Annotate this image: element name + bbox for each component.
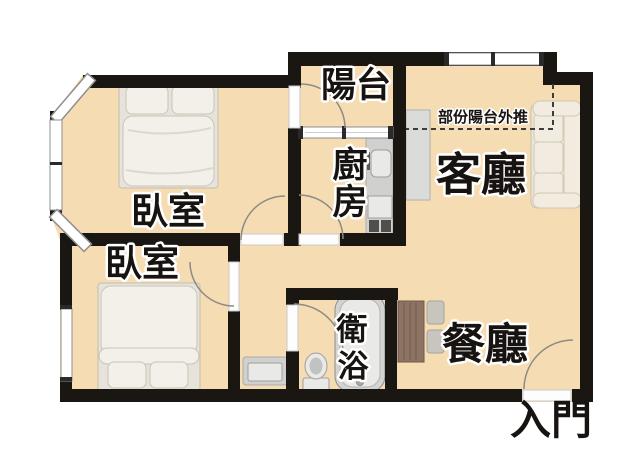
window-jamb — [60, 305, 72, 309]
stove-burner — [369, 220, 379, 232]
wall-bedroom2-left-lower — [60, 380, 72, 402]
sofa-armrest — [533, 101, 581, 116]
stove — [368, 196, 392, 218]
wall-bedroom2-left-upper — [60, 235, 72, 310]
balcony-door-opening — [289, 86, 300, 128]
pillow — [150, 362, 188, 388]
bedroom-top-door-opening — [241, 234, 283, 245]
dining-set — [398, 301, 444, 362]
floor-plan-drawing: 臥室 臥室 陽台 廚 房 客廳 衛 浴 餐廳 部份陽台外推 入門 — [0, 0, 640, 455]
toilet — [303, 353, 329, 391]
window-mullion — [491, 52, 495, 66]
wall-kitchen-left — [288, 128, 301, 246]
wall-kitchen-right — [393, 52, 406, 246]
window-jamb — [444, 52, 449, 66]
kitchen-door-opening — [299, 234, 339, 245]
wall-step-vertical — [543, 52, 557, 85]
label-balcony-extension-note: 部份陽台外推 — [438, 108, 528, 126]
sofa — [531, 101, 581, 208]
duvet — [101, 286, 197, 354]
label-dining-room: 餐廳 — [442, 321, 528, 369]
wall-balcony-left-upper — [288, 52, 301, 87]
stove-burner — [381, 220, 391, 232]
sofa-back — [564, 110, 581, 202]
label-living-room: 客廳 — [436, 149, 526, 200]
wall-bedroom-top — [83, 75, 301, 88]
label-bedroom-bottom: 臥室 — [105, 242, 179, 284]
bathroom-door-opening — [287, 305, 298, 351]
kitchen-counter — [366, 134, 393, 234]
bed-bedroom-top — [119, 82, 218, 188]
floor-plan-page: 臥室 臥室 陽台 廚 房 客廳 衛 浴 餐廳 部份陽台外推 入門 — [0, 0, 640, 455]
sofa-armrest — [533, 193, 581, 208]
wall-bedroom2-right-lower — [228, 311, 240, 402]
pillow — [172, 86, 214, 114]
label-bathroom-char1: 衛 — [336, 312, 368, 347]
bedroom-bottom-door-opening — [229, 262, 239, 311]
window-jamb — [388, 126, 393, 139]
washer-cabinet — [243, 357, 287, 385]
wall-bedroom2-right-upper — [228, 233, 240, 262]
label-bathroom-char2: 浴 — [338, 349, 370, 384]
duvet — [123, 116, 214, 186]
wall-right — [580, 72, 593, 402]
label-balcony: 陽台 — [321, 66, 391, 105]
wall-bathroom-left-lower — [286, 351, 299, 402]
wall-bathroom-left-upper — [286, 288, 299, 305]
wall-bathroom-right — [385, 288, 397, 402]
washer-cabinet-basin — [248, 363, 282, 381]
label-kitchen-char2: 房 — [332, 183, 367, 222]
pillow — [108, 362, 146, 388]
label-kitchen-char1: 廚 — [332, 145, 367, 185]
window-jamb — [539, 52, 544, 66]
window-jamb — [60, 377, 72, 381]
tv-cabinet — [406, 110, 430, 200]
label-bedroom-top: 臥室 — [131, 190, 205, 232]
label-entrance: 入門 — [510, 397, 592, 443]
toilet-bowl-inner — [310, 358, 323, 375]
bedroom-bottom-window — [61, 309, 72, 381]
wall-bathroom-top — [286, 288, 398, 300]
window-mullion — [50, 162, 62, 165]
kitchen-sink — [371, 150, 391, 177]
bed-bedroom-bottom — [98, 283, 200, 391]
sofa-cushion — [534, 142, 563, 173]
pillow — [126, 86, 168, 114]
counter-top — [366, 134, 393, 234]
dining-table — [398, 301, 424, 362]
